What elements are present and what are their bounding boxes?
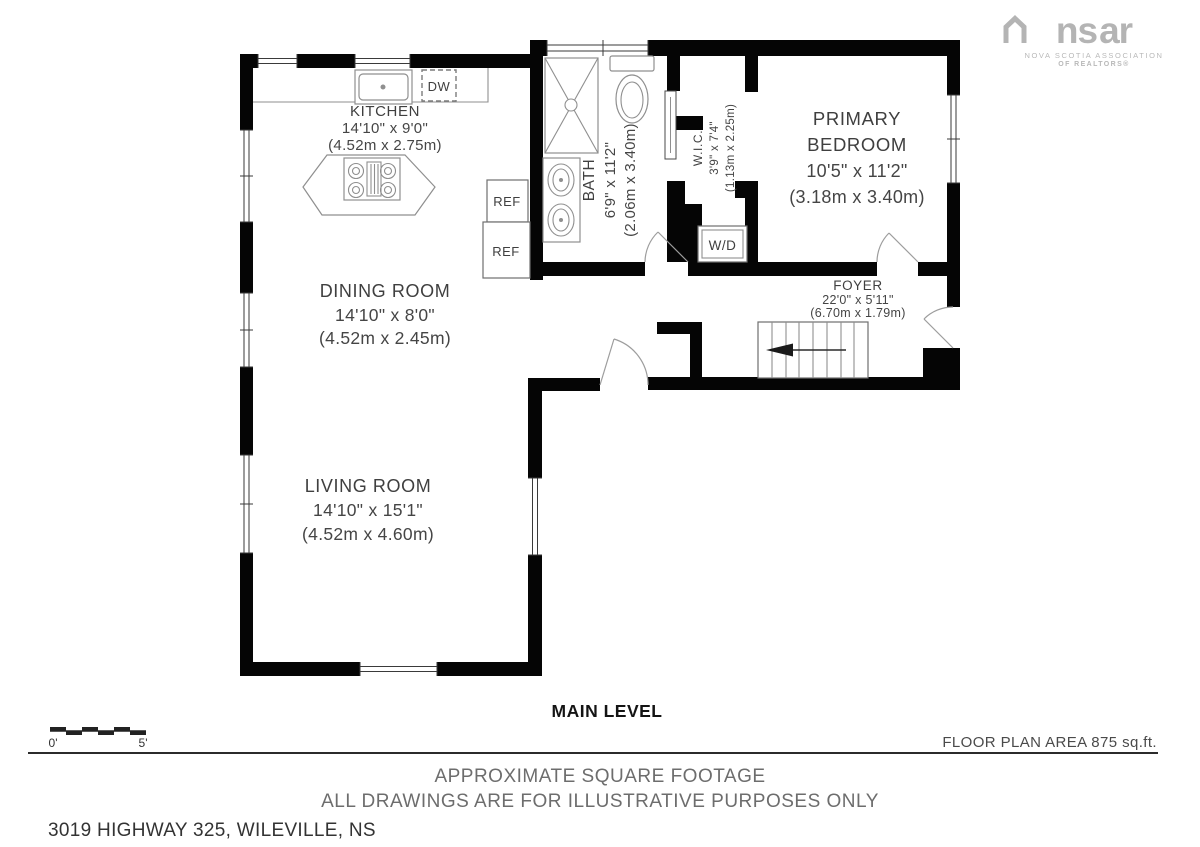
window-icon — [258, 54, 297, 68]
address-label: 3019 HIGHWAY 325, WILEVILLE, NS — [48, 820, 376, 841]
foyer-metric: (6.70m x 1.79m) — [810, 306, 906, 320]
pocket-door-icon — [665, 91, 676, 159]
living-name: LIVING ROOM — [305, 476, 432, 496]
vanity-sinks-icon — [543, 158, 580, 242]
bedroom-imperial: 10'5" x 11'2" — [806, 161, 907, 181]
scale-end-label: 5' — [139, 736, 148, 750]
living-imperial: 14'10" x 15'1" — [313, 500, 423, 520]
window-icon — [240, 130, 253, 222]
bedroom-metric: (3.18m x 3.40m) — [789, 187, 925, 207]
living-room-label: LIVING ROOM 14'10" x 15'1" (4.52m x 4.60… — [302, 476, 434, 544]
bath-name: BATH — [581, 159, 598, 202]
stairs-icon — [758, 322, 868, 378]
window-icon — [547, 40, 648, 56]
fridge-box-2: REF — [483, 222, 530, 278]
window-icon — [360, 662, 437, 676]
nsar-wordmark-right: ar — [1099, 14, 1132, 48]
washer-dryer-box: W/D — [698, 226, 747, 262]
nsar-subtitle-1: NOVA SCOTIA ASSOCIATION — [1002, 51, 1186, 60]
nsar-logo: ns ar NOVA SCOTIA ASSOCIATION OF REALTOR… — [1002, 14, 1186, 68]
scale-start-label: 0' — [49, 736, 58, 750]
window-icon — [947, 95, 960, 183]
bath-imperial: 6'9" x 11'2" — [602, 142, 619, 218]
dining-name: DINING ROOM — [320, 281, 451, 301]
window-icon — [240, 293, 253, 367]
primary-bedroom-label: PRIMARY BEDROOM 10'5" x 11'2" (3.18m x 3… — [789, 108, 925, 207]
floor-plan-svg: DW REF REF — [0, 0, 1200, 847]
kitchen-fixtures: DW REF REF — [253, 68, 530, 278]
kitchen-name: KITCHEN — [350, 103, 420, 120]
dishwasher-box: DW — [422, 70, 456, 101]
stove-icon — [344, 158, 400, 200]
disclaimer-line1: APPROXIMATE SQUARE FOOTAGE — [434, 766, 765, 787]
shower-icon — [545, 58, 598, 153]
disclaimer-line2: ALL DRAWINGS ARE FOR ILLUSTRATIVE PURPOS… — [321, 791, 879, 812]
toilet-icon — [610, 56, 654, 123]
entry-door-arc — [924, 307, 953, 348]
wic-metric: (1.13m x 2.25m) — [725, 104, 737, 192]
dishwasher-label: DW — [428, 79, 451, 94]
foyer-imperial: 22'0" x 5'11" — [822, 293, 894, 307]
fridge-box-1: REF — [487, 180, 528, 222]
nsar-wordmark: ns ar — [1002, 14, 1186, 48]
window-icon — [355, 54, 410, 68]
fridge-top-label: REF — [493, 194, 521, 209]
foyer-label: FOYER 22'0" x 5'11" (6.70m x 1.79m) — [810, 278, 906, 320]
fridge-bottom-label: REF — [492, 244, 520, 259]
nsar-wordmark-left: ns — [1056, 14, 1097, 48]
floor-plan-area-label: FLOOR PLAN AREA 875 sq.ft. — [942, 734, 1157, 751]
kitchen-imperial: 14'10" x 9'0" — [342, 120, 428, 137]
kitchen-label: KITCHEN 14'10" x 9'0" (4.52m x 2.75m) — [328, 103, 442, 154]
dining-room-label: DINING ROOM 14'10" x 8'0" (4.52m x 2.45m… — [319, 281, 451, 348]
bath-metric: (2.06m x 3.40m) — [622, 123, 639, 237]
window-icon — [240, 455, 253, 553]
bedroom-door-arc — [877, 233, 918, 262]
level-title: MAIN LEVEL — [552, 701, 663, 721]
scale-bar: 0' 5' — [49, 727, 148, 750]
wic-imperial: 3'9" x 7'4" — [709, 121, 721, 175]
dining-imperial: 14'10" x 8'0" — [335, 305, 435, 325]
bedroom-name-line1: PRIMARY — [813, 108, 901, 129]
wic-name: W.I.C. — [691, 130, 705, 166]
floor-plan-page: DW REF REF — [0, 0, 1200, 847]
kitchen-metric: (4.52m x 2.75m) — [328, 137, 442, 154]
window-icon — [528, 478, 542, 555]
washer-dryer-label: W/D — [709, 238, 737, 253]
living-metric: (4.52m x 4.60m) — [302, 524, 434, 544]
sink-icon — [355, 70, 412, 104]
bedroom-name-line2: BEDROOM — [807, 134, 907, 155]
nsar-subtitle-2: OF REALTORS® — [1002, 61, 1186, 68]
foyer-name: FOYER — [833, 278, 883, 293]
living-door-arc — [600, 339, 648, 385]
dining-metric: (4.52m x 2.45m) — [319, 328, 451, 348]
